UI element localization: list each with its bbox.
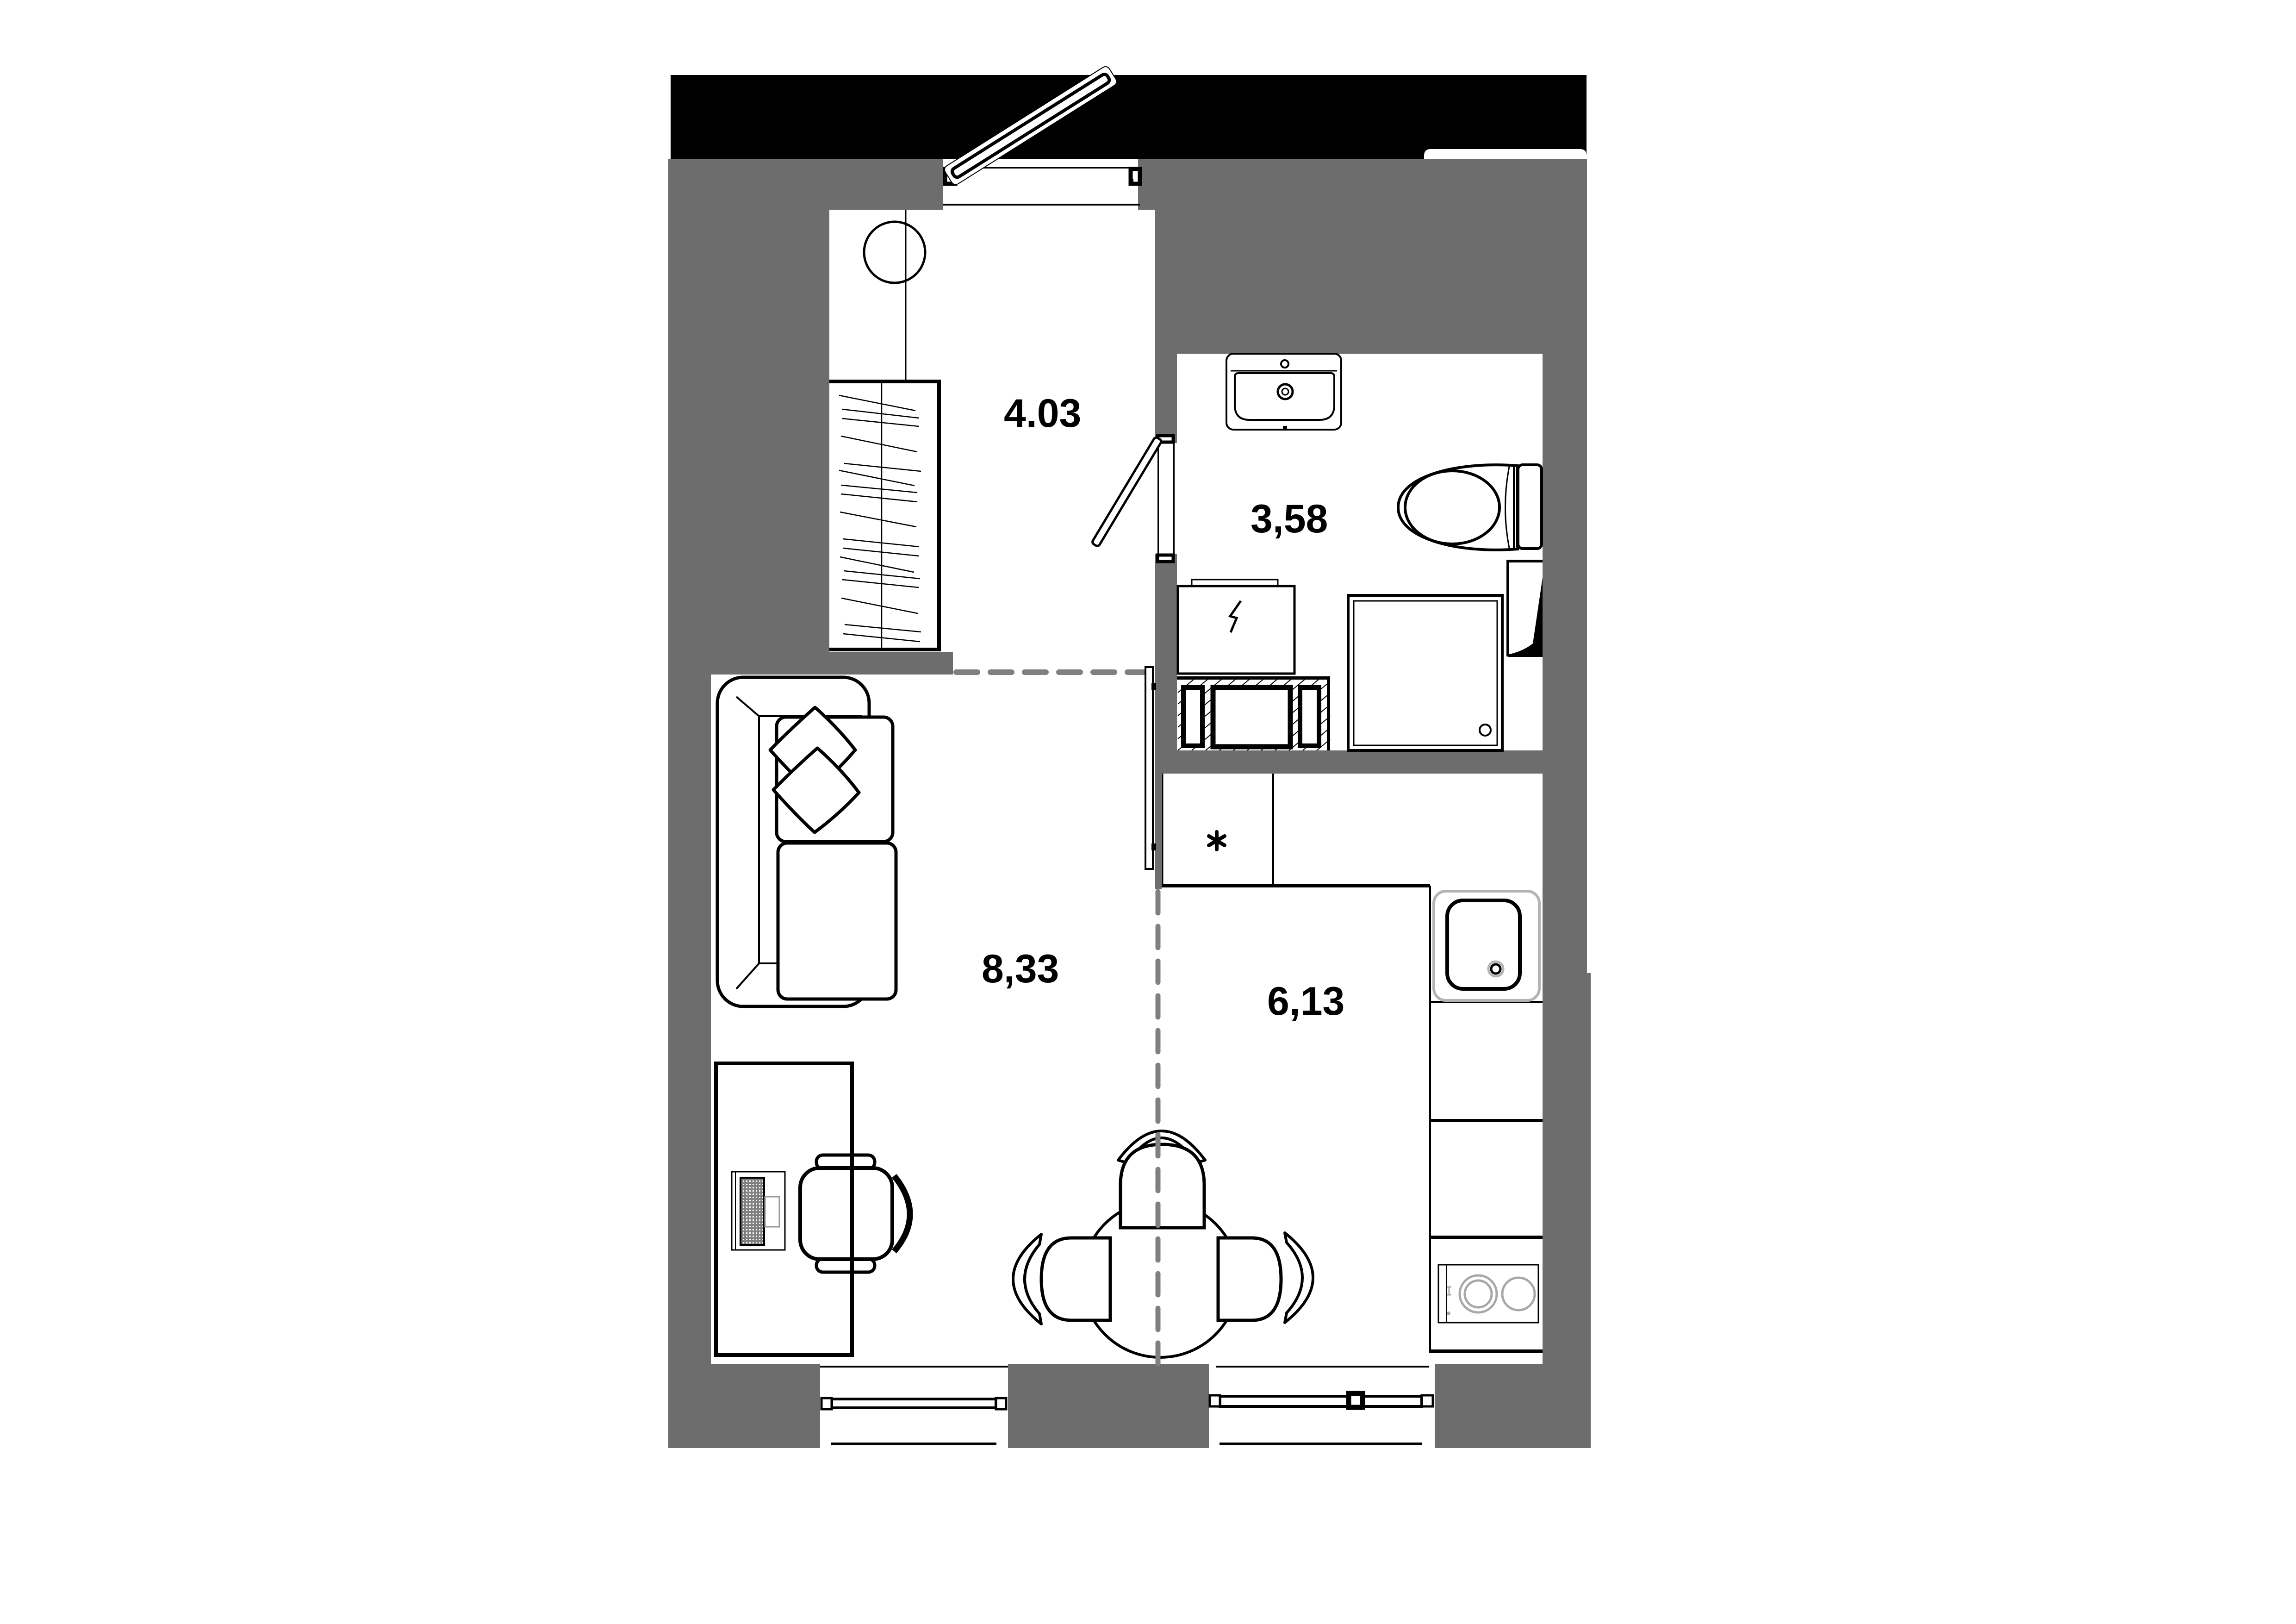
svg-text:8,33: 8,33 xyxy=(982,947,1059,991)
svg-text:6,13: 6,13 xyxy=(1267,979,1344,1024)
svg-text:4.03: 4.03 xyxy=(1004,391,1081,436)
svg-text:3,58: 3,58 xyxy=(1251,497,1328,541)
